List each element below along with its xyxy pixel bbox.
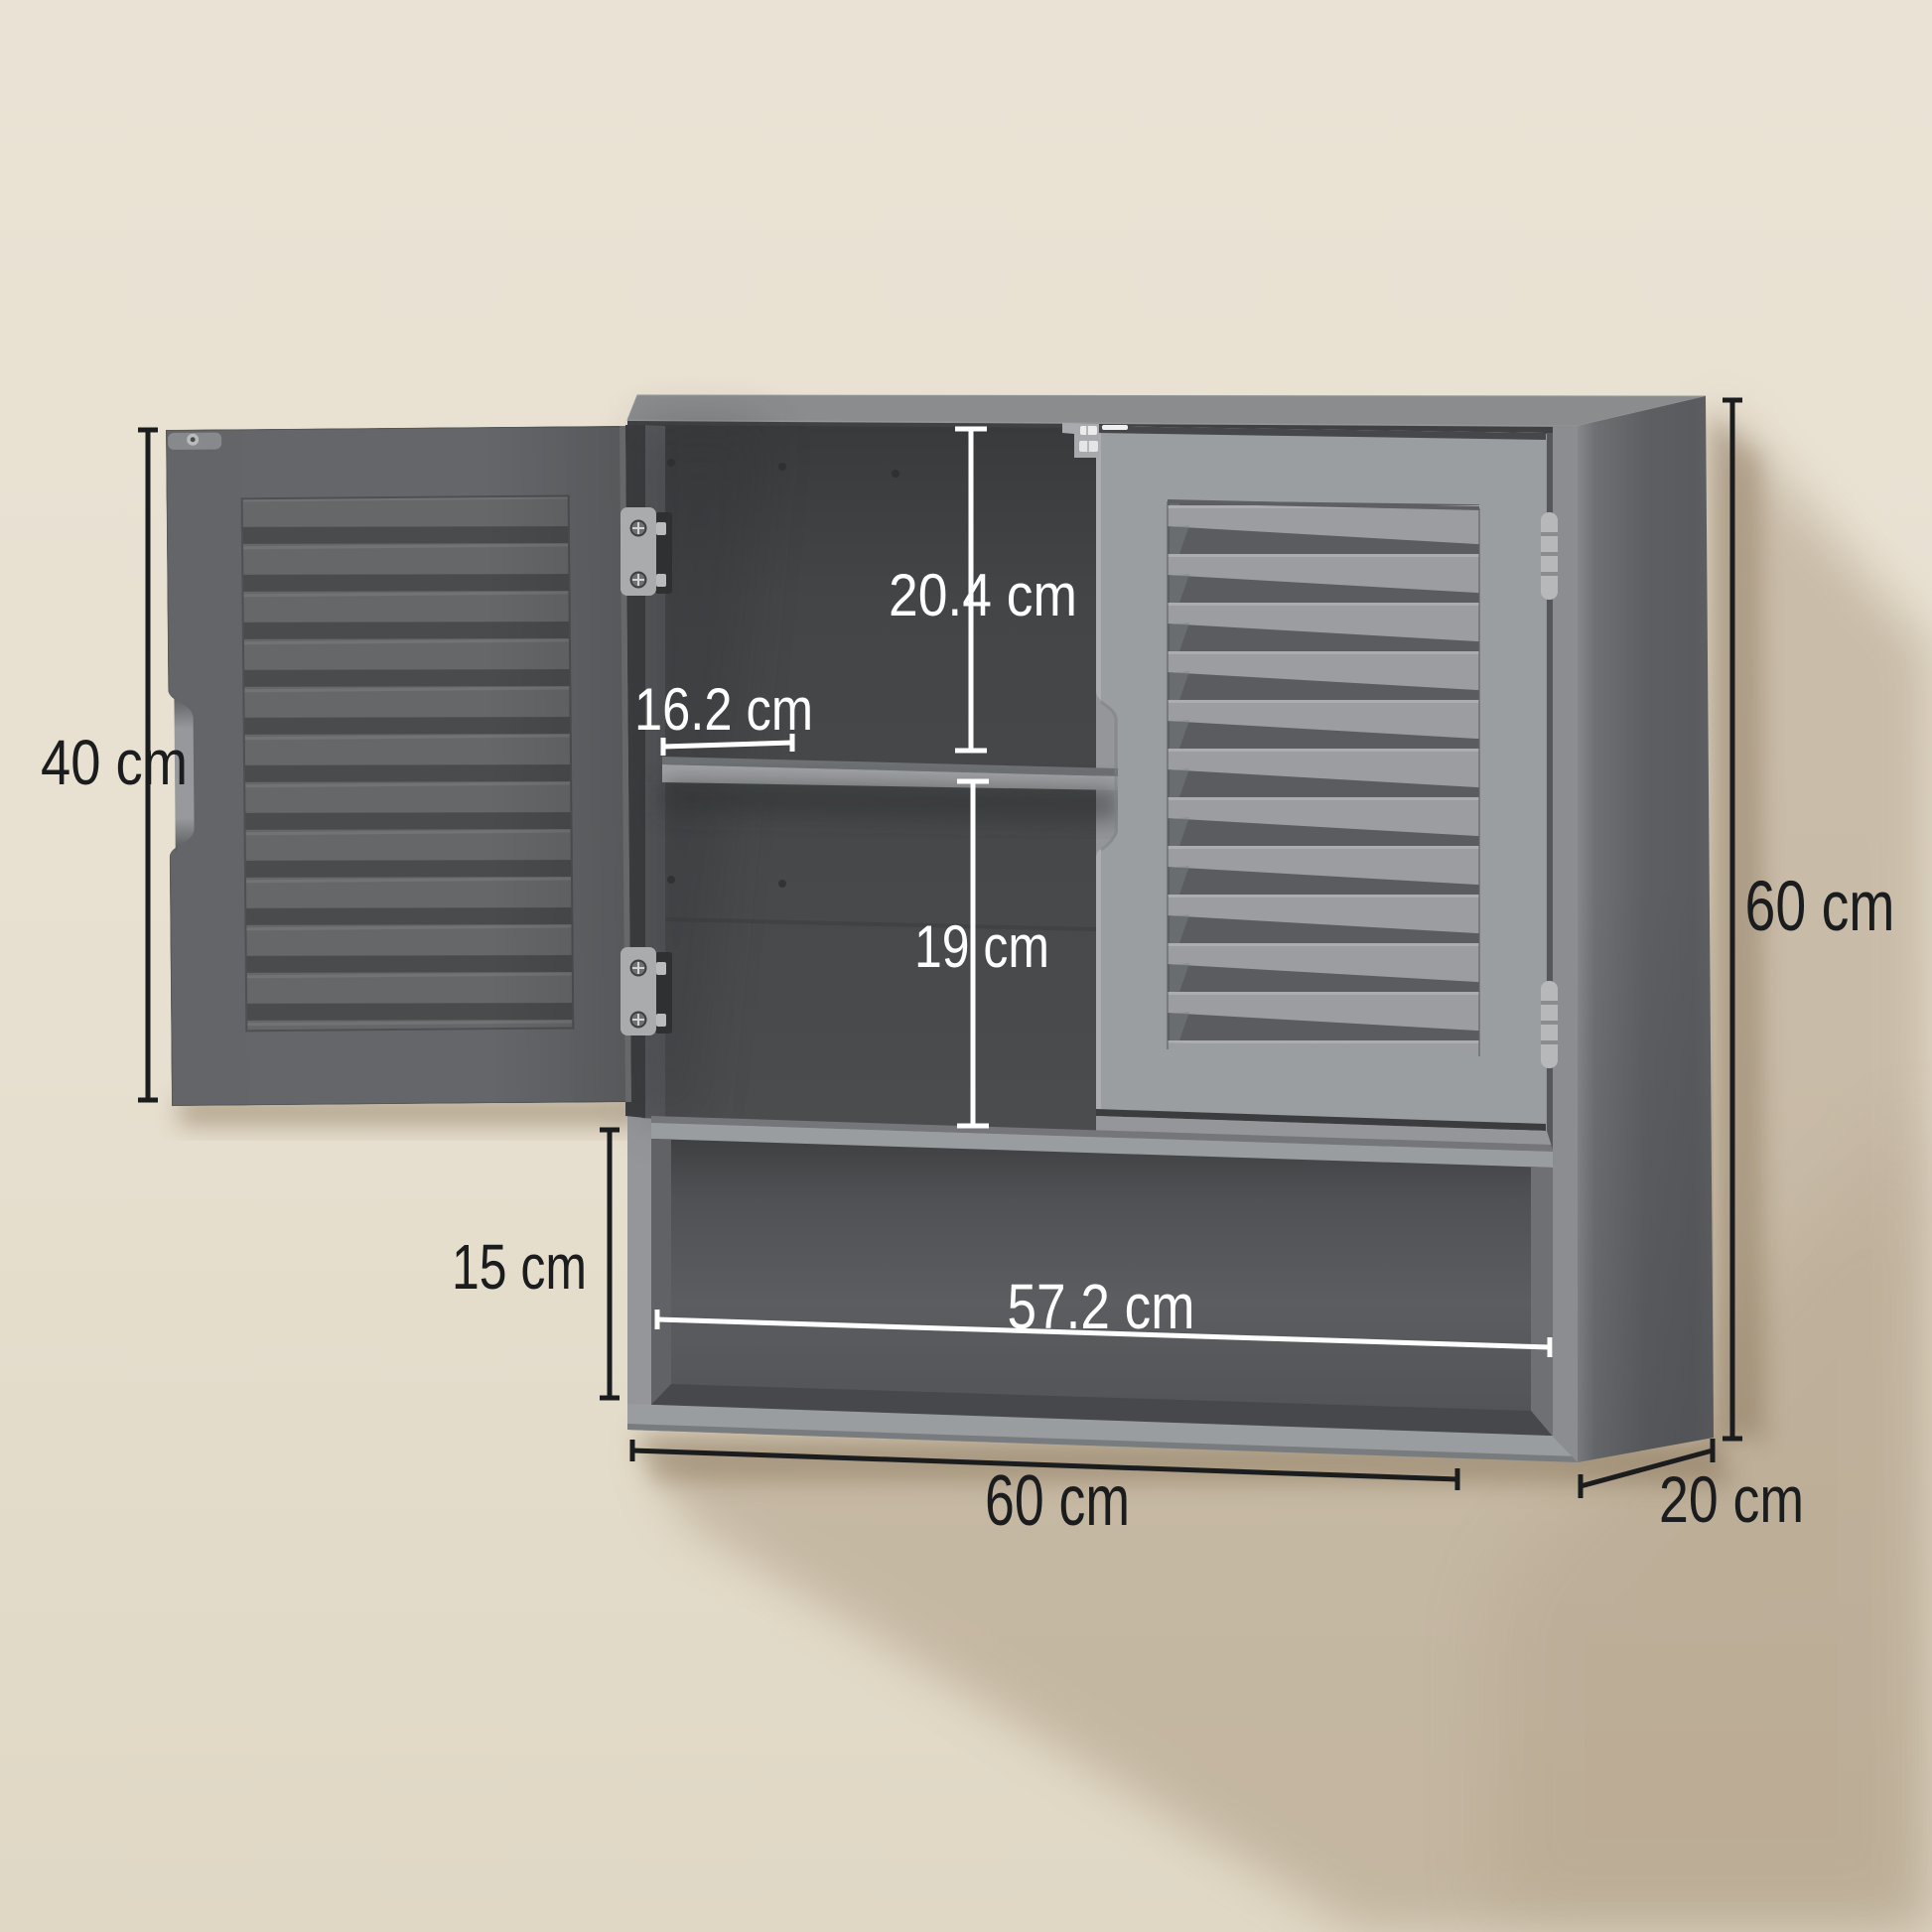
- svg-text:20 cm: 20 cm: [1659, 1462, 1804, 1536]
- svg-text:19 cm: 19 cm: [914, 913, 1049, 980]
- svg-text:57.2 cm: 57.2 cm: [1008, 1271, 1195, 1342]
- svg-text:15 cm: 15 cm: [452, 1231, 587, 1303]
- svg-text:40 cm: 40 cm: [41, 727, 188, 798]
- svg-text:16.2 cm: 16.2 cm: [634, 676, 813, 743]
- svg-text:60 cm: 60 cm: [1745, 868, 1895, 946]
- svg-text:20.4 cm: 20.4 cm: [889, 562, 1077, 628]
- svg-text:60 cm: 60 cm: [985, 1461, 1130, 1541]
